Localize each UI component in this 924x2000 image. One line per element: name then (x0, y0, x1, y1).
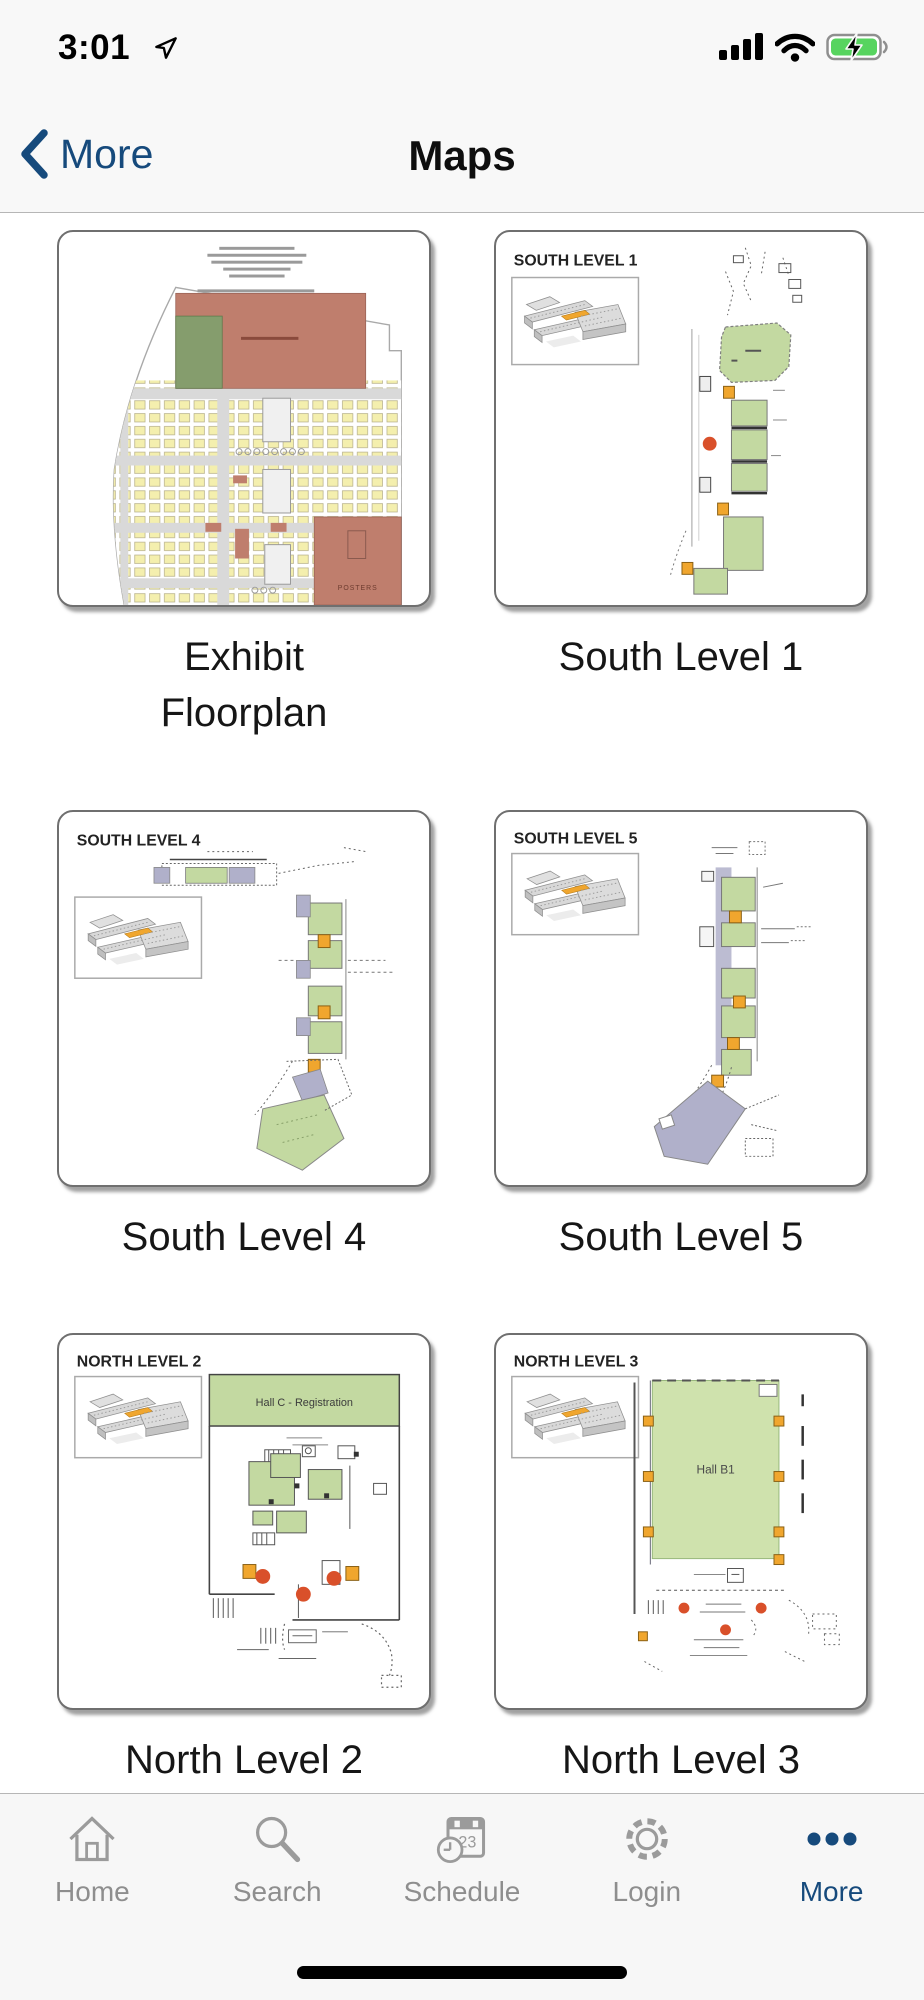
navigation-bar: More Maps (0, 110, 924, 210)
map-thumbnail-exhibit-floorplan: POSTERS (57, 230, 431, 607)
tab-login-label: Login (554, 1876, 739, 1908)
map-card-north-level-3[interactable]: NORTH LEVEL 3 Hall B1 (494, 1333, 868, 1710)
tab-bar: Home Search 23 Schedule (0, 1793, 924, 2000)
tab-more[interactable]: More (739, 1794, 924, 2000)
bottom-green-hall (257, 1095, 344, 1170)
dashed-routes (644, 1600, 839, 1671)
back-button[interactable]: More (18, 128, 153, 180)
map-card-north-level-2[interactable]: NORTH LEVEL 2 Hall C - Registration (57, 1333, 431, 1710)
map-card-label: South Level 5 (494, 1209, 868, 1265)
map-inset-title: SOUTH LEVEL 1 (514, 253, 638, 270)
map-card-south-level-1[interactable]: SOUTH LEVEL 1 (494, 230, 868, 607)
posters-label: POSTERS (338, 585, 378, 592)
map-thumbnail-south-level-4: SOUTH LEVEL 4 (57, 810, 431, 1187)
lower-stairs (648, 1600, 663, 1614)
map-card-exhibit-floorplan[interactable]: POSTERS Exhibit Floorplan (57, 230, 431, 607)
red-dot-markers (679, 1603, 767, 1636)
hall-b1-label: Hall B1 (697, 1463, 736, 1477)
meeting-rooms (694, 400, 767, 594)
header: 3:01 (0, 0, 924, 213)
map-thumbnail-south-level-5: SOUTH LEVEL 5 (494, 810, 868, 1187)
page-title: Maps (262, 132, 662, 180)
map-card-south-level-5[interactable]: SOUTH LEVEL 5 (494, 810, 868, 1187)
signal-strength-icon (718, 32, 764, 62)
tiny-text-marks (287, 1438, 329, 1445)
exhibit-floorplan-drawing: POSTERS (59, 232, 429, 605)
map-inset-title: SOUTH LEVEL 5 (514, 831, 638, 848)
annotation-ticks (761, 883, 812, 942)
battery-charging-icon (826, 32, 890, 62)
tab-home[interactable]: Home (0, 1794, 185, 2000)
south-level-5-drawing: SOUTH LEVEL 5 (496, 812, 866, 1185)
stair-glyphs (700, 871, 714, 946)
bottom-stairs (213, 1598, 275, 1644)
hall-c-label: Hall C - Registration (256, 1397, 353, 1409)
map-inset-title: SOUTH LEVEL 4 (77, 833, 201, 850)
green-rooms (249, 1454, 342, 1533)
top-wing (154, 848, 366, 886)
tab-more-label: More (739, 1876, 924, 1908)
more-dots-icon (804, 1811, 860, 1867)
map-card-label: Exhibit Floorplan (57, 629, 431, 741)
dashed-routes (283, 1624, 402, 1687)
bottom-dashed (745, 1095, 779, 1156)
status-time: 3:01 (58, 28, 130, 68)
lower-details (656, 1568, 785, 1655)
map-thumbnail-south-level-1: SOUTH LEVEL 1 (494, 230, 868, 607)
map-card-label: South Level 4 (57, 1209, 431, 1265)
south-level-1-drawing: SOUTH LEVEL 1 (496, 232, 866, 605)
home-icon (64, 1811, 120, 1867)
schedule-calendar-icon: 23 (434, 1811, 490, 1867)
status-bar: 3:01 (0, 26, 924, 70)
bottom-details (237, 1630, 348, 1659)
center-features (263, 398, 291, 584)
north-level-3-drawing: NORTH LEVEL 3 Hall B1 (496, 1335, 866, 1708)
map-card-label: South Level 1 (494, 629, 868, 685)
map-inset-title: NORTH LEVEL 2 (77, 1354, 202, 1371)
tab-home-label: Home (0, 1876, 185, 1908)
map-card-south-level-4[interactable]: SOUTH LEVEL 4 (57, 810, 431, 1187)
plan-scatter-marks (726, 248, 789, 315)
home-indicator[interactable] (297, 1966, 627, 1979)
search-icon (249, 1811, 305, 1867)
map-card-label: North Level 3 (494, 1732, 868, 1788)
tab-schedule-label: Schedule (370, 1876, 555, 1908)
chevron-left-icon (18, 128, 48, 180)
map-thumbnail-north-level-3: NORTH LEVEL 3 Hall B1 (494, 1333, 868, 1710)
gear-icon (619, 1811, 675, 1867)
red-dot-marker (703, 437, 717, 451)
plan-small-rooms (733, 256, 801, 303)
south-level-4-drawing: SOUTH LEVEL 4 (59, 812, 429, 1185)
tick-marks (771, 390, 787, 455)
tab-search-label: Search (185, 1876, 370, 1908)
stair-glyphs (700, 376, 711, 492)
map-inset-title: NORTH LEVEL 3 (514, 1354, 639, 1371)
wifi-icon (775, 32, 815, 62)
featured-area-green (176, 316, 222, 388)
back-button-label: More (60, 131, 153, 178)
map-card-label: North Level 2 (57, 1732, 431, 1788)
location-arrow-icon (152, 34, 180, 62)
map-thumbnail-north-level-2: NORTH LEVEL 2 Hall C - Registration (57, 1333, 431, 1710)
vertical-rooms (296, 895, 342, 1053)
top-marks (712, 842, 765, 855)
featured-area-text (241, 337, 298, 340)
ballroom-green (720, 323, 791, 382)
posters-area: POSTERS (314, 517, 401, 605)
maps-screen: { "status_bar": { "time": "3:01" }, "nav… (0, 0, 924, 2000)
north-level-2-drawing: NORTH LEVEL 2 Hall C - Registration (59, 1335, 429, 1708)
